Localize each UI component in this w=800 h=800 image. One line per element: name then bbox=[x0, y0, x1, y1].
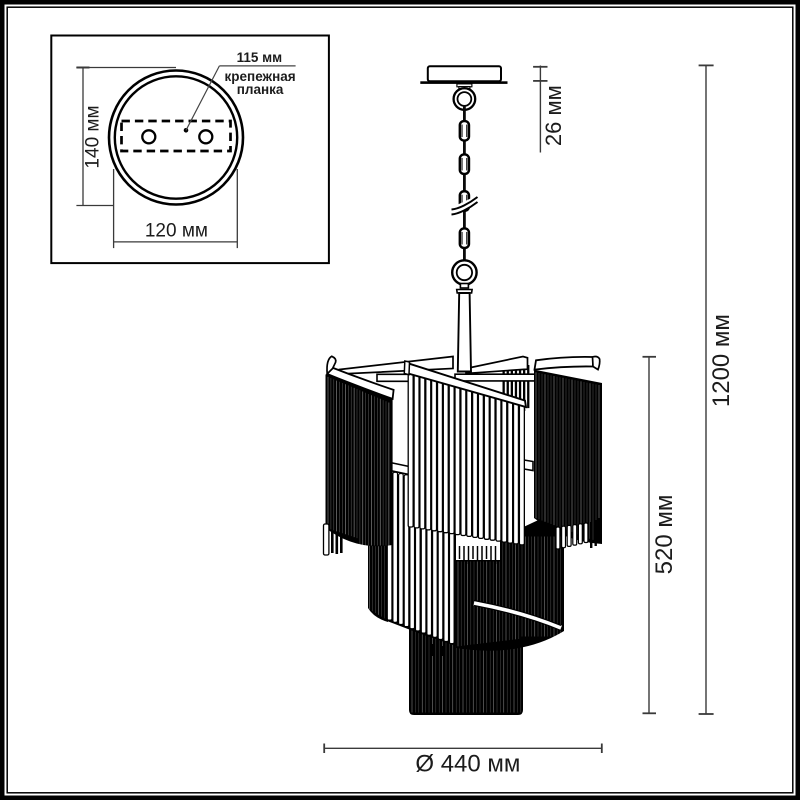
svg-text:115 мм: 115 мм bbox=[237, 50, 283, 65]
svg-text:Ø 440 мм: Ø 440 мм bbox=[415, 751, 520, 778]
svg-text:планка: планка bbox=[237, 82, 284, 97]
svg-text:520 мм: 520 мм bbox=[651, 495, 678, 575]
svg-text:120 мм: 120 мм bbox=[145, 221, 208, 242]
svg-text:140 мм: 140 мм bbox=[83, 105, 104, 168]
svg-text:26 мм: 26 мм bbox=[541, 85, 566, 146]
svg-text:1200 мм: 1200 мм bbox=[708, 314, 735, 407]
